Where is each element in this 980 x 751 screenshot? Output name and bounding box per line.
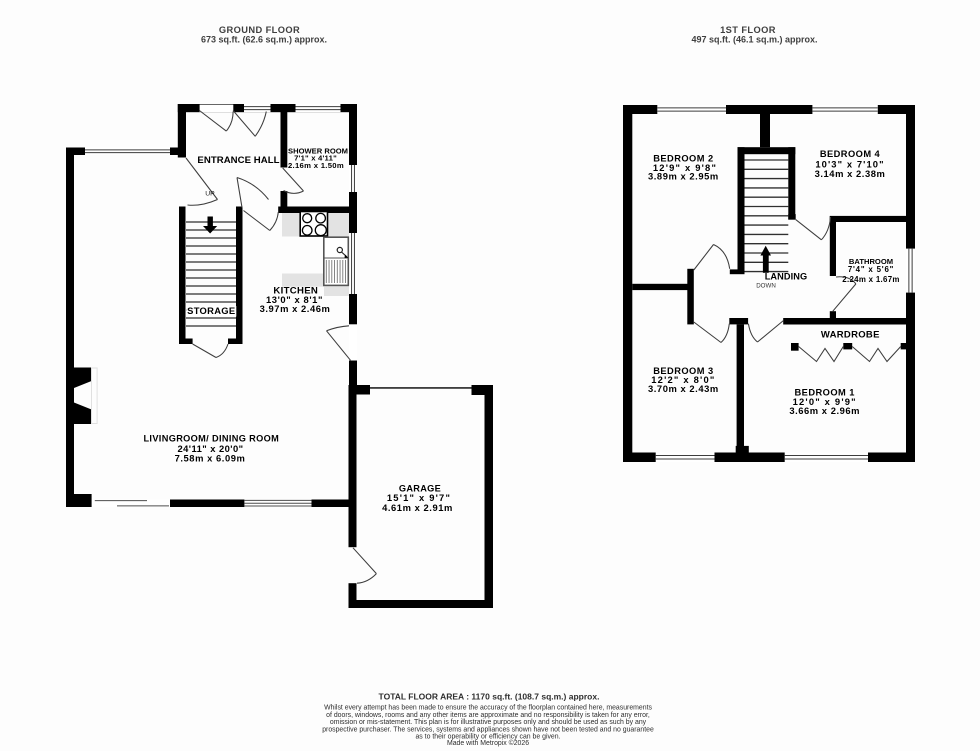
svg-text:STORAGE: STORAGE xyxy=(187,305,235,316)
svg-text:UP: UP xyxy=(205,190,215,197)
svg-text:2.16m x 1.50m: 2.16m x 1.50m xyxy=(288,161,344,170)
svg-text:3.14m x 2.38m: 3.14m x 2.38m xyxy=(815,168,886,179)
svg-text:7'4" x 5'6": 7'4" x 5'6" xyxy=(848,265,894,274)
svg-text:LANDING: LANDING xyxy=(765,272,808,282)
svg-text:WARDROBE: WARDROBE xyxy=(821,330,880,341)
svg-text:4.61m x 2.91m: 4.61m x 2.91m xyxy=(382,502,453,513)
svg-text:7.58m x 6.09m: 7.58m x 6.09m xyxy=(175,452,246,463)
svg-text:ENTRANCE HALL: ENTRANCE HALL xyxy=(197,155,279,166)
svg-text:omission or mis-statement. Thi: omission or mis-statement. This plan is … xyxy=(330,719,647,726)
svg-text:Whilst every attempt has been: Whilst every attempt has been made to en… xyxy=(324,705,652,712)
svg-text:3.97m x 2.46m: 3.97m x 2.46m xyxy=(260,303,331,314)
svg-text:673 sq.ft. (62.6 sq.m.) approx: 673 sq.ft. (62.6 sq.m.) approx. xyxy=(201,35,327,45)
svg-text:TOTAL FLOOR AREA : 1170 sq.ft.: TOTAL FLOOR AREA : 1170 sq.ft. (108.7 sq… xyxy=(379,692,600,702)
svg-text:1ST FLOOR: 1ST FLOOR xyxy=(720,25,776,35)
svg-text:GROUND FLOOR: GROUND FLOOR xyxy=(219,25,300,35)
svg-text:of doors, windows, rooms and a: of doors, windows, rooms and any other i… xyxy=(326,712,650,719)
svg-text:3.70m x 2.43m: 3.70m x 2.43m xyxy=(648,383,719,394)
svg-text:497 sq.ft. (46.1 sq.m.) approx: 497 sq.ft. (46.1 sq.m.) approx. xyxy=(691,35,817,45)
svg-text:prospective purchaser. The ser: prospective purchaser. The services, sys… xyxy=(322,726,654,733)
svg-text:3.66m x 2.96m: 3.66m x 2.96m xyxy=(789,405,860,416)
svg-text:DOWN: DOWN xyxy=(756,282,776,289)
svg-text:3.89m x 2.95m: 3.89m x 2.95m xyxy=(648,171,719,182)
svg-text:2.24m x 1.67m: 2.24m x 1.67m xyxy=(842,275,899,284)
svg-text:Made with Metropix ©2026: Made with Metropix ©2026 xyxy=(447,739,529,747)
